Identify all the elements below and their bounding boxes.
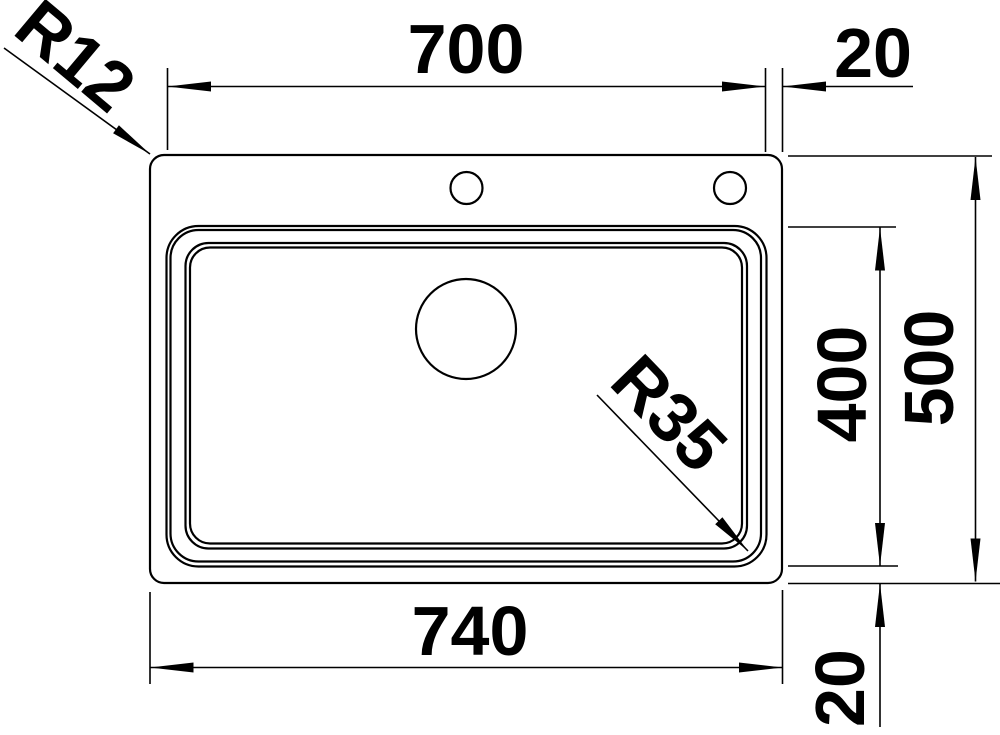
dim-20-top-label: 20 [834, 14, 912, 92]
arrowhead-right-icon [739, 663, 783, 673]
arrowhead-up-icon [875, 228, 885, 271]
arrowhead-down-icon [971, 539, 981, 582]
dim-740-label: 740 [412, 592, 529, 670]
arrowhead-left-icon [783, 82, 827, 92]
arrowhead-left-icon [168, 82, 212, 92]
technical-drawing-canvas: 700 20 500 400 20 740 [0, 0, 1000, 735]
dimension-bowl-depth-400: 400 [788, 227, 898, 566]
arrowhead-left-icon [150, 663, 194, 673]
radius-r12-label: R12 [1, 0, 150, 127]
radius-r35-label: R35 [597, 340, 742, 487]
arrowhead-up-icon [971, 157, 981, 200]
arrowhead-leader-icon [113, 125, 150, 154]
arrowhead-right-icon [722, 82, 766, 92]
radius-callout-r12: R12 [1, 0, 150, 154]
dimension-rim-offset-bottom-20: 20 [801, 584, 885, 728]
dim-20-bottom-label: 20 [801, 649, 879, 727]
dim-500-label: 500 [890, 310, 968, 427]
dimension-rim-offset-right-20: 20 [783, 14, 914, 152]
tap-hole-center [451, 172, 483, 204]
dim-700-label: 700 [408, 10, 525, 88]
radius-callout-r35: R35 [597, 340, 748, 551]
sink-outer-outline [150, 155, 782, 583]
sink-technical-drawing: 700 20 500 400 20 740 [0, 0, 1000, 735]
dimension-bowl-width-700: 700 [168, 10, 766, 152]
dim-400-label: 400 [803, 326, 881, 443]
arrowhead-down-icon [875, 523, 885, 566]
sink-plan-view [150, 155, 782, 583]
drain-hole [416, 279, 516, 379]
tap-hole-right [714, 172, 746, 204]
dimension-overall-width-740: 740 [150, 590, 783, 684]
arrowhead-up-icon [875, 584, 885, 628]
